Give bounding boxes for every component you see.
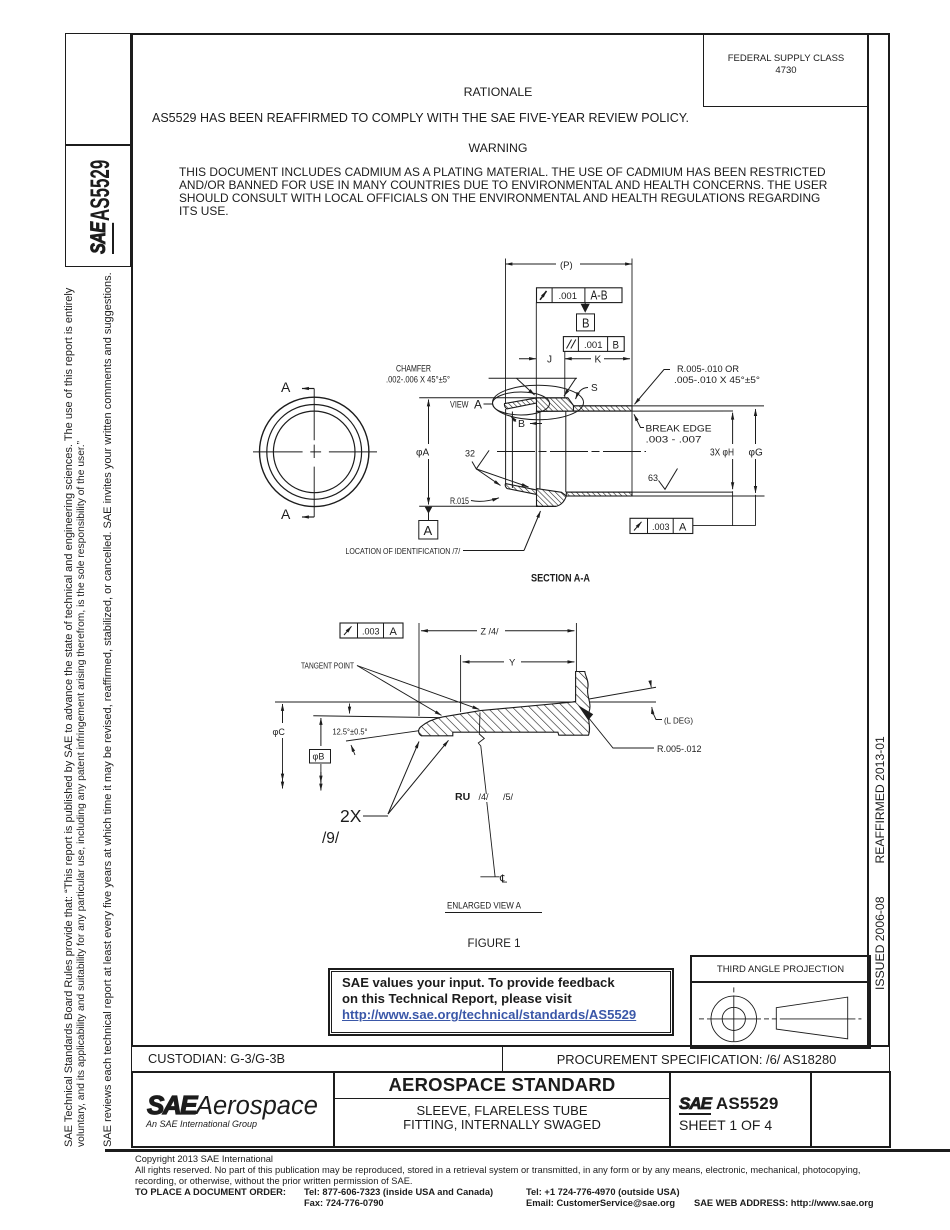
svg-text:B: B (582, 316, 590, 331)
svg-text:A: A (281, 506, 291, 522)
svg-text:φG: φG (749, 447, 763, 458)
svg-text:2X: 2X (340, 806, 362, 826)
svg-text:A: A (474, 398, 482, 412)
svg-text:φC: φC (273, 727, 286, 737)
svg-text:A-B: A-B (591, 289, 608, 303)
svg-text:.003 - .007: .003 - .007 (646, 434, 702, 445)
svg-text:RU: RU (455, 791, 470, 803)
svg-text:A: A (679, 522, 687, 534)
svg-text:φA: φA (416, 448, 429, 459)
svg-text:(L DEG): (L DEG) (664, 715, 693, 725)
svg-text:A: A (390, 626, 398, 638)
svg-text:.002-.006 X 45°±5°: .002-.006 X 45°±5° (386, 375, 450, 385)
svg-text:/5/: /5/ (503, 792, 514, 802)
svg-text:B: B (518, 418, 525, 430)
svg-text:.001: .001 (559, 291, 578, 302)
svg-text:A: A (424, 523, 433, 538)
svg-text:R.015: R.015 (450, 496, 469, 506)
svg-text:/4/: /4/ (479, 792, 490, 802)
svg-text:J: J (547, 355, 552, 366)
svg-text:.001: .001 (584, 340, 603, 351)
svg-text:BREAK EDGE: BREAK EDGE (646, 424, 712, 435)
svg-text:S: S (591, 383, 598, 394)
svg-text:R.005-.012: R.005-.012 (657, 744, 702, 754)
svg-text:CHAMFER: CHAMFER (396, 364, 431, 374)
svg-text:ENLARGED VIEW A: ENLARGED VIEW A (447, 901, 522, 912)
svg-text:/9/: /9/ (322, 830, 340, 847)
svg-text:32: 32 (465, 449, 475, 459)
svg-text:.003: .003 (652, 522, 670, 532)
svg-text:B: B (613, 339, 620, 351)
svg-text:(P): (P) (560, 260, 573, 271)
svg-text:Y: Y (509, 658, 516, 669)
svg-text:LOCATION OF IDENTIFICATION /7/: LOCATION OF IDENTIFICATION /7/ (346, 546, 461, 556)
svg-text:3X φH: 3X φH (710, 447, 734, 458)
svg-text:℄: ℄ (499, 874, 507, 886)
svg-text:K: K (595, 355, 602, 366)
svg-text:Z /4/: Z /4/ (481, 627, 500, 637)
svg-text:SECTION A-A: SECTION A-A (531, 573, 590, 585)
svg-text:FIGURE 1: FIGURE 1 (468, 938, 521, 950)
svg-text:.003: .003 (362, 626, 380, 636)
svg-text:R.005-.010 OR: R.005-.010 OR (677, 364, 740, 374)
svg-text:φB: φB (313, 752, 325, 762)
svg-text:.005-.010 X 45°±5°: .005-.010 X 45°±5° (674, 375, 760, 385)
svg-text:TANGENT POINT: TANGENT POINT (301, 660, 354, 670)
svg-text:63: 63 (648, 473, 658, 483)
svg-text:VIEW: VIEW (450, 400, 469, 410)
svg-text:A: A (281, 379, 291, 395)
svg-text:12.5°±0.5°: 12.5°±0.5° (333, 727, 368, 737)
